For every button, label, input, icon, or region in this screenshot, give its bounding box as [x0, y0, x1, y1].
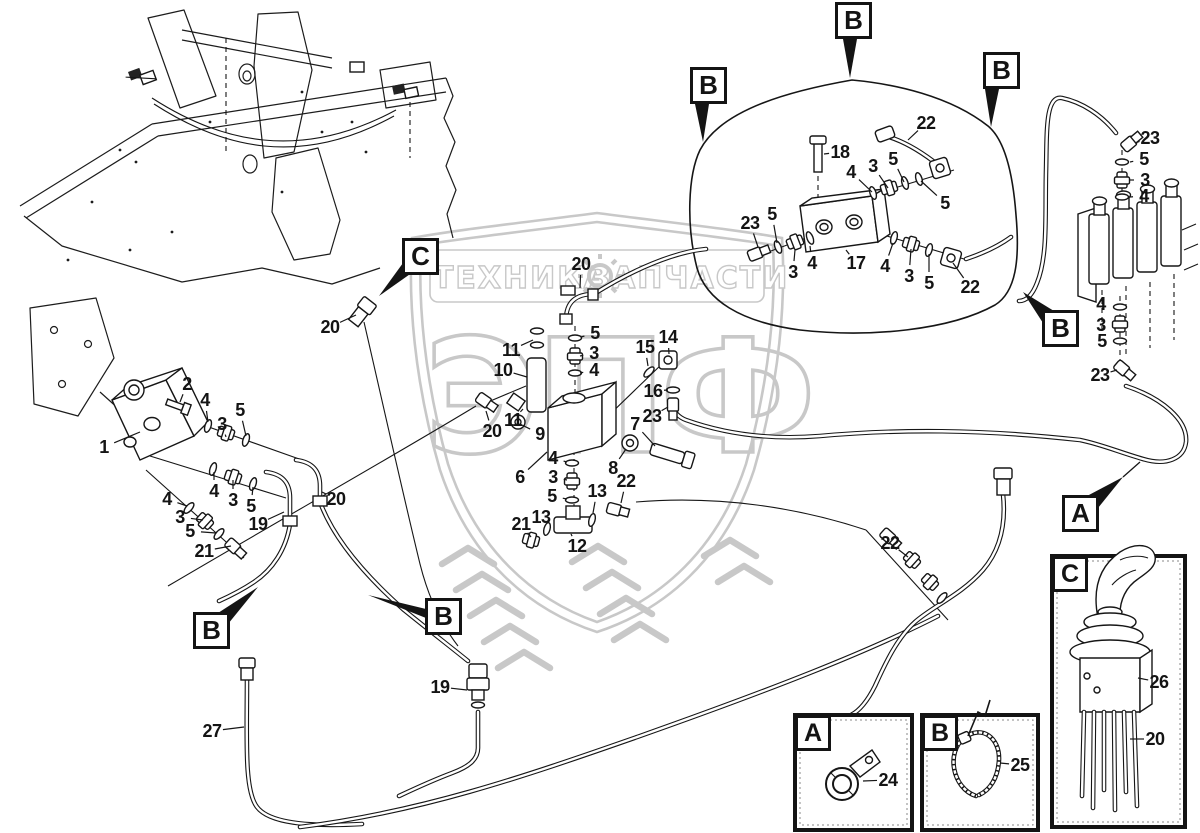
callout-10: 10: [493, 361, 512, 379]
callout-15: 15: [635, 338, 654, 356]
callout-21: 21: [511, 515, 530, 533]
callout-23: 23: [740, 214, 759, 232]
callout-20: 20: [320, 318, 339, 336]
section-marker-b: B: [1042, 310, 1079, 347]
section-marker-c: C: [402, 238, 439, 275]
callout-5: 5: [1139, 150, 1149, 168]
callout-19: 19: [248, 515, 267, 533]
callout-27: 27: [202, 722, 221, 740]
callout-11: 11: [504, 411, 522, 429]
callout-25: 25: [1010, 756, 1029, 774]
callout-26: 26: [1149, 673, 1168, 691]
section-marker-b: B: [425, 598, 462, 635]
labels-layer: 1243543543521192020271920534111011209643…: [0, 0, 1200, 833]
section-marker-b: B: [193, 612, 230, 649]
callout-5: 5: [767, 205, 777, 223]
callout-5: 5: [888, 150, 898, 168]
callout-17: 17: [846, 254, 865, 272]
callout-2: 2: [182, 375, 192, 393]
callout-21: 21: [194, 542, 213, 560]
callout-7: 7: [630, 415, 640, 433]
callout-3: 3: [228, 491, 238, 509]
callout-5: 5: [940, 194, 950, 212]
callout-4: 4: [807, 254, 817, 272]
callout-3: 3: [868, 157, 878, 175]
callout-20: 20: [1145, 730, 1164, 748]
callout-3: 3: [175, 508, 185, 526]
callout-4: 4: [209, 482, 219, 500]
callout-13: 13: [587, 482, 606, 500]
section-marker-b: B: [690, 67, 727, 104]
callout-5: 5: [246, 497, 256, 515]
callout-6: 6: [515, 468, 525, 486]
callout-19: 19: [430, 678, 449, 696]
callout-20: 20: [326, 490, 345, 508]
callout-4: 4: [200, 391, 210, 409]
callout-23: 23: [1140, 129, 1159, 147]
section-marker-a: A: [1062, 495, 1099, 532]
callout-3: 3: [904, 267, 914, 285]
callout-3: 3: [548, 468, 558, 486]
callout-23: 23: [1090, 366, 1109, 384]
callout-18: 18: [830, 143, 849, 161]
callout-13: 13: [531, 508, 550, 526]
callout-24: 24: [878, 771, 897, 789]
section-marker-b: B: [835, 2, 872, 39]
callout-11: 11: [502, 341, 520, 359]
callout-3: 3: [217, 415, 227, 433]
callout-20: 20: [482, 422, 501, 440]
callout-5: 5: [590, 324, 600, 342]
callout-22: 22: [960, 278, 979, 296]
callout-5: 5: [924, 274, 934, 292]
callout-4: 4: [880, 257, 890, 275]
callout-4: 4: [589, 361, 599, 379]
callout-8: 8: [608, 459, 618, 477]
inset-b-letter-tile: B: [922, 715, 958, 751]
callout-5: 5: [235, 401, 245, 419]
callout-9: 9: [535, 425, 545, 443]
callout-4: 4: [1096, 295, 1106, 313]
inset-a-letter-tile: A: [795, 715, 831, 751]
callout-12: 12: [567, 537, 586, 555]
callout-3: 3: [788, 263, 798, 281]
callout-22: 22: [616, 472, 635, 490]
callout-23: 23: [642, 407, 661, 425]
callout-16: 16: [643, 382, 662, 400]
section-marker-b: B: [983, 52, 1020, 89]
callout-22: 22: [880, 534, 899, 552]
callout-5: 5: [547, 487, 557, 505]
callout-22: 22: [916, 114, 935, 132]
callout-20: 20: [571, 255, 590, 273]
callout-14: 14: [658, 328, 677, 346]
callout-4: 4: [162, 490, 172, 508]
callout-4: 4: [548, 449, 558, 467]
callout-5: 5: [185, 522, 195, 540]
callout-5: 5: [1097, 332, 1107, 350]
inset-c-letter-tile: C: [1052, 556, 1088, 592]
callout-4: 4: [846, 163, 856, 181]
hydraulic-piping-parts-diagram[interactable]: ТЕХНИКА ЗАПЧАСТИ Э П Ф: [0, 0, 1200, 833]
callout-1: 1: [99, 438, 109, 456]
callout-4: 4: [1139, 187, 1149, 205]
